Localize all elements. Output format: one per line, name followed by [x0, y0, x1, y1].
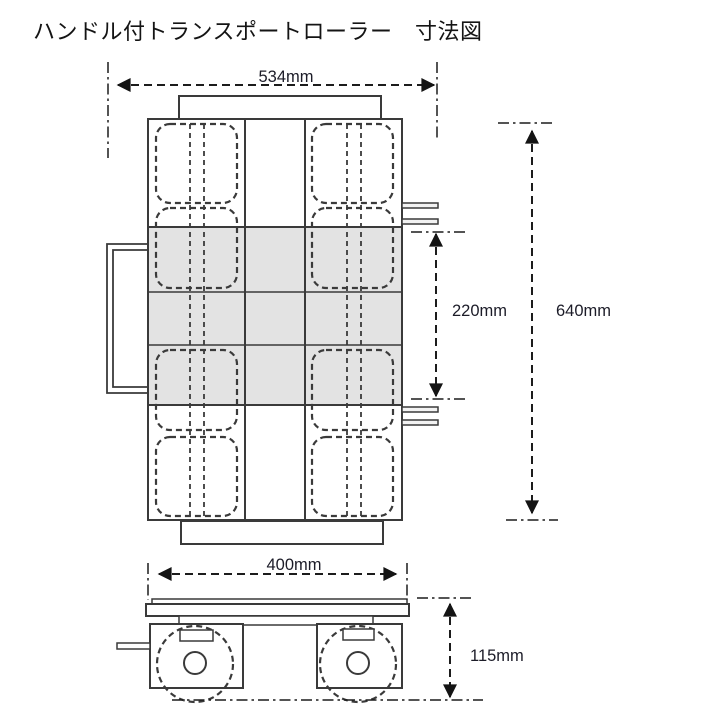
- handle: [107, 244, 148, 393]
- load-platform: [148, 227, 402, 405]
- axle-pin: [402, 219, 438, 224]
- front-view: [117, 599, 409, 702]
- handle-stub: [117, 643, 150, 649]
- axle-pins: [402, 203, 438, 425]
- dim-label-deck-width: 400mm: [266, 556, 321, 574]
- dimension-drawing: ハンドル付トランスポートローラー 寸法図: [0, 0, 713, 713]
- axle-mount-left: [180, 630, 213, 641]
- dim-label-overall-width: 534mm: [258, 68, 313, 86]
- top-end-plate: [179, 96, 381, 119]
- axle-pin: [402, 203, 438, 208]
- axle-pin: [402, 420, 438, 425]
- bottom-end-plate: [181, 521, 383, 544]
- dim-label-overall-height: 115mm: [470, 647, 524, 665]
- drawing-title: ハンドル付トランスポートローラー 寸法図: [33, 19, 483, 44]
- axle-pin: [402, 407, 438, 412]
- dim-overall-length: 640mm: [498, 123, 611, 520]
- axle-mount-right: [343, 629, 374, 640]
- dim-roller-pitch: 220mm: [411, 232, 507, 399]
- top-view: [107, 96, 438, 544]
- dim-deck-width: 400mm: [148, 556, 407, 600]
- dim-label-roller-pitch: 220mm: [452, 302, 507, 320]
- drawing-sheet: ハンドル付トランスポートローラー 寸法図: [0, 0, 713, 713]
- dim-label-overall-length: 640mm: [556, 302, 611, 320]
- deck-platform: [146, 604, 409, 616]
